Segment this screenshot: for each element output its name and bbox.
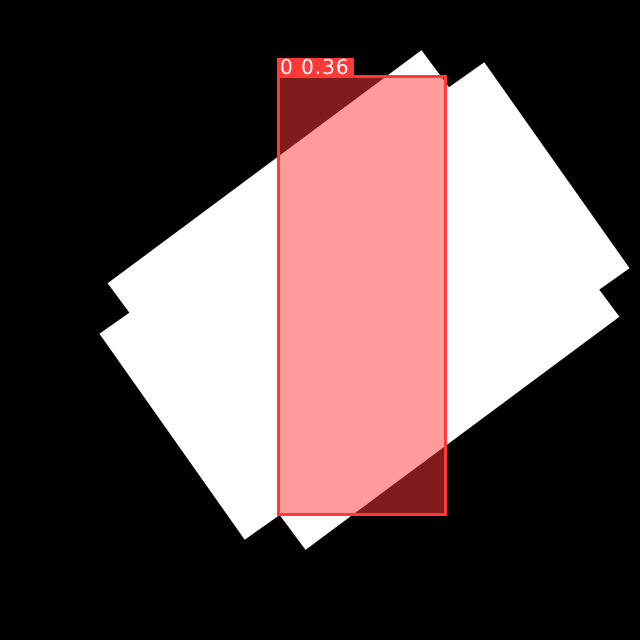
detection-label-text: 0 0.36 (280, 55, 350, 79)
detection-bounding-box (277, 75, 447, 516)
image-canvas: 0 0.36 (0, 0, 640, 640)
detection-label: 0 0.36 (277, 58, 354, 77)
